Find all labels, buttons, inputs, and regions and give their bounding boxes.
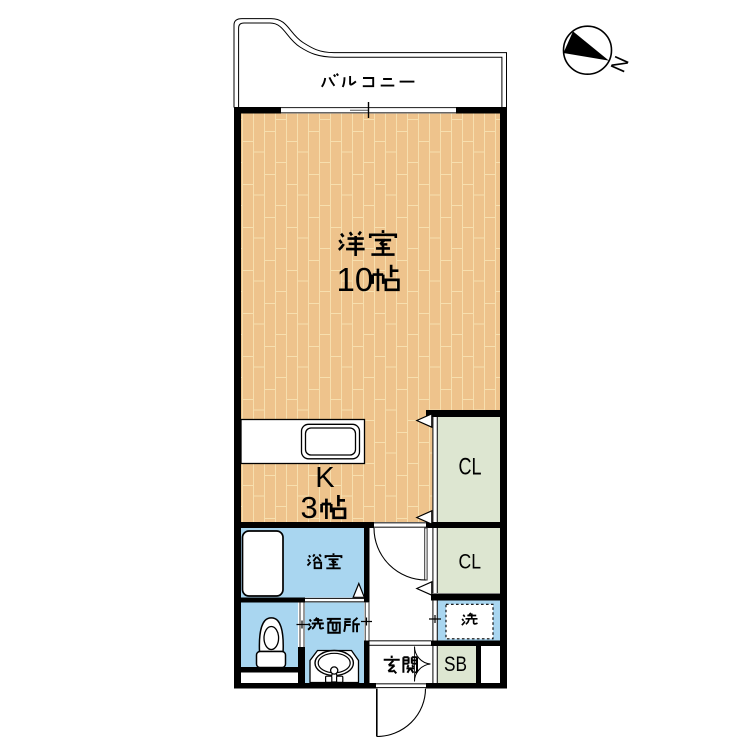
svg-text:CL: CL bbox=[459, 551, 482, 574]
svg-text:CL: CL bbox=[459, 454, 482, 481]
svg-text:K: K bbox=[315, 462, 335, 494]
svg-text:3: 3 bbox=[301, 490, 318, 525]
svg-text:10: 10 bbox=[337, 261, 374, 298]
svg-text:SB: SB bbox=[444, 653, 467, 676]
